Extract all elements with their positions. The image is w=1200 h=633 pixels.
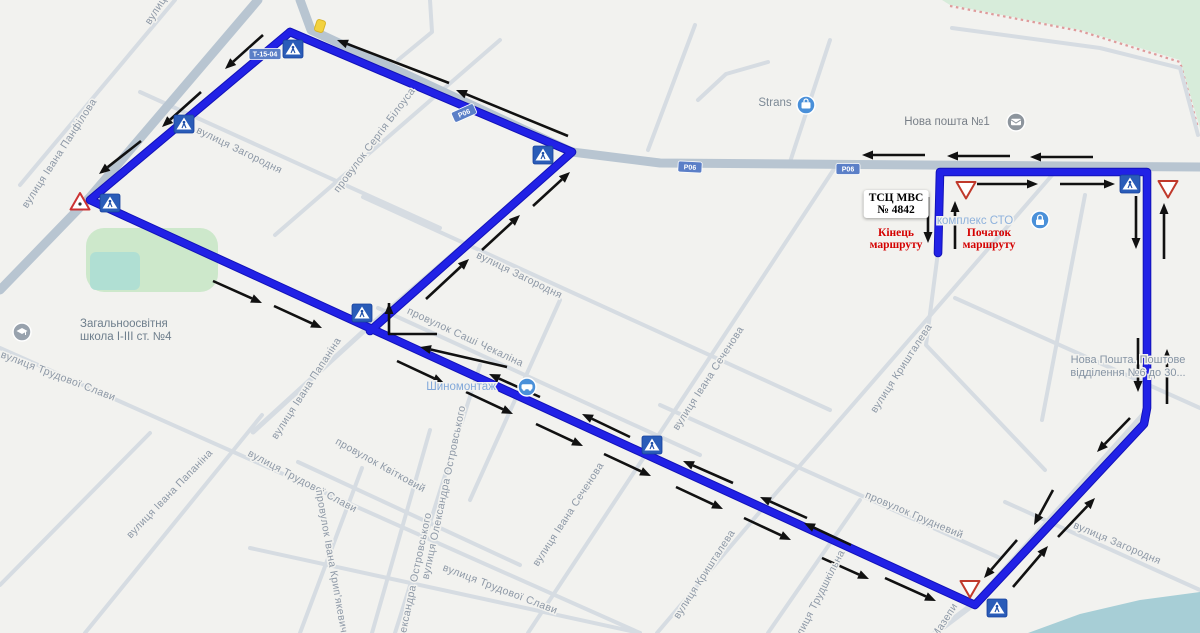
school-label: школа І-ІІІ ст. №4 bbox=[80, 331, 172, 343]
crosswalk-icon bbox=[987, 599, 1007, 617]
lock-icon bbox=[1036, 220, 1044, 226]
map-canvas[interactable]: Р06Р06Р06Т-15-04вулиця Івана Панфіловаву… bbox=[0, 0, 1200, 633]
poi-shynomontazh-label: Шиномонтаж bbox=[426, 381, 496, 393]
crosswalk-person-head bbox=[651, 442, 654, 445]
road-shield: Р06 bbox=[678, 161, 703, 173]
crosswalk-icon bbox=[352, 304, 372, 322]
tsc-mvs-label: ТСЦ МВС № 4842 bbox=[864, 190, 929, 218]
crosswalk-person-head bbox=[1129, 181, 1132, 184]
crosswalk-icon bbox=[642, 436, 662, 454]
road-shield: Р06 bbox=[836, 164, 860, 175]
tsc-mvs-line2: № 4842 bbox=[869, 204, 924, 216]
tsc-mvs-line1: ТСЦ МВС bbox=[869, 192, 924, 204]
crosswalk-person-head bbox=[109, 200, 112, 203]
crosswalk-person-head bbox=[996, 605, 999, 608]
crosswalk-icon bbox=[174, 115, 194, 133]
poi-strans-label: Strans bbox=[758, 97, 791, 109]
crosswalk-person-head bbox=[292, 46, 295, 49]
crosswalk-icon bbox=[283, 40, 303, 58]
school-label: Загальноосвітня bbox=[80, 318, 168, 330]
warning-glyph bbox=[78, 202, 81, 205]
crosswalk-person-head bbox=[542, 152, 545, 155]
np-office-label: Нова Пошта. Поштове bbox=[1071, 354, 1186, 366]
crosswalk-icon bbox=[1120, 175, 1140, 193]
pool-area bbox=[90, 252, 140, 290]
poi-nova-poshta-1-label: Нова пошта №1 bbox=[904, 116, 990, 128]
car-wheel bbox=[529, 388, 532, 391]
road-shield-text: Р06 bbox=[684, 164, 697, 172]
road-shield: Т-15-04 bbox=[249, 49, 281, 60]
route-start-label: Початок маршруту bbox=[963, 227, 1016, 251]
poi-komplex-sto-label: комплекс СТО bbox=[937, 215, 1013, 227]
road-shield-text: Т-15-04 bbox=[253, 52, 278, 59]
car-wheel bbox=[523, 388, 526, 391]
mail-icon bbox=[1011, 119, 1021, 125]
np-office-label: відділення №6 до 30... bbox=[1070, 367, 1185, 379]
road-shield-text: Р06 bbox=[842, 167, 855, 174]
crosswalk-person-head bbox=[183, 121, 186, 124]
crosswalk-icon bbox=[533, 146, 553, 164]
crosswalk-person-head bbox=[361, 310, 364, 313]
map-stage: Р06Р06Р06Т-15-04вулиця Івана Панфіловаву… bbox=[0, 0, 1200, 633]
route-end-label: Кінець маршруту bbox=[870, 227, 923, 251]
briefcase-icon bbox=[802, 102, 811, 108]
crosswalk-icon bbox=[100, 194, 120, 212]
